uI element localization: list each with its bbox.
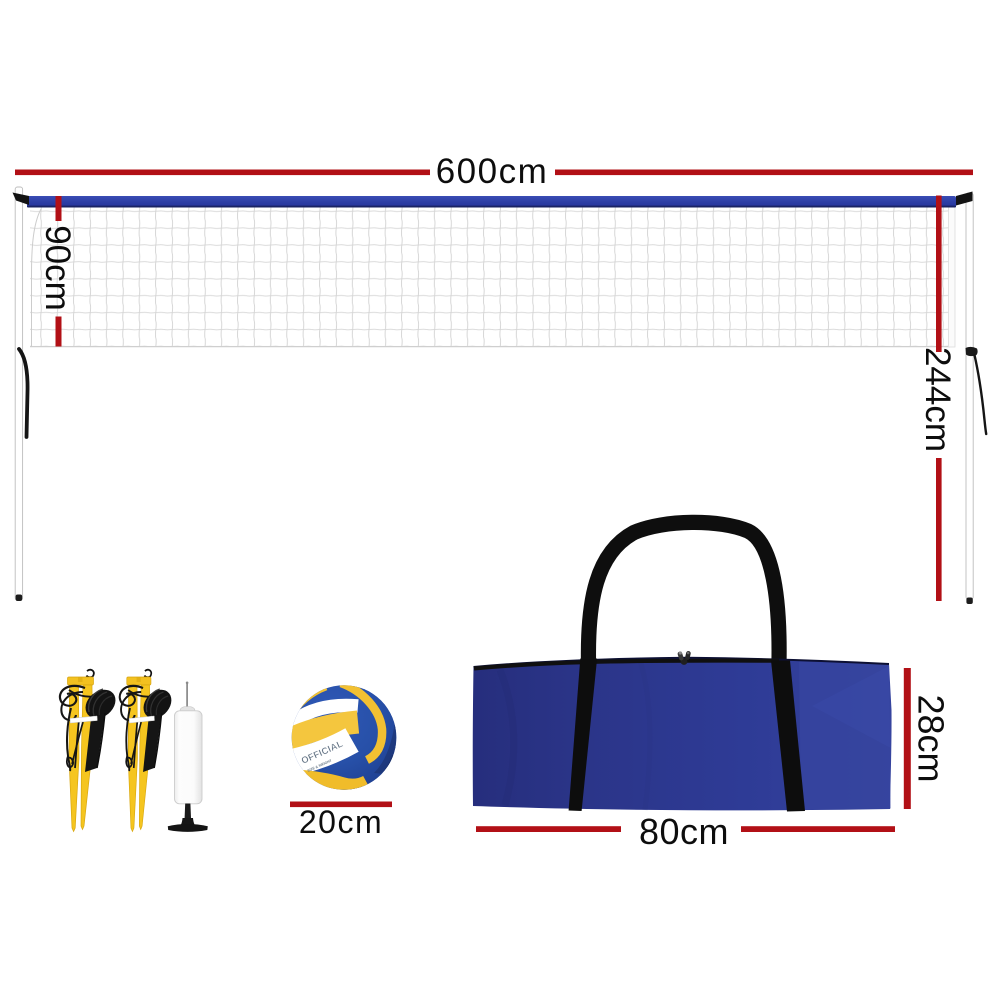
svg-text:600cm: 600cm — [436, 152, 549, 191]
svg-text:90cm: 90cm — [38, 225, 77, 311]
svg-text:244cm: 244cm — [918, 347, 957, 452]
svg-text:28cm: 28cm — [911, 694, 952, 782]
svg-text:80cm: 80cm — [639, 811, 729, 852]
svg-text:20cm: 20cm — [299, 804, 383, 840]
